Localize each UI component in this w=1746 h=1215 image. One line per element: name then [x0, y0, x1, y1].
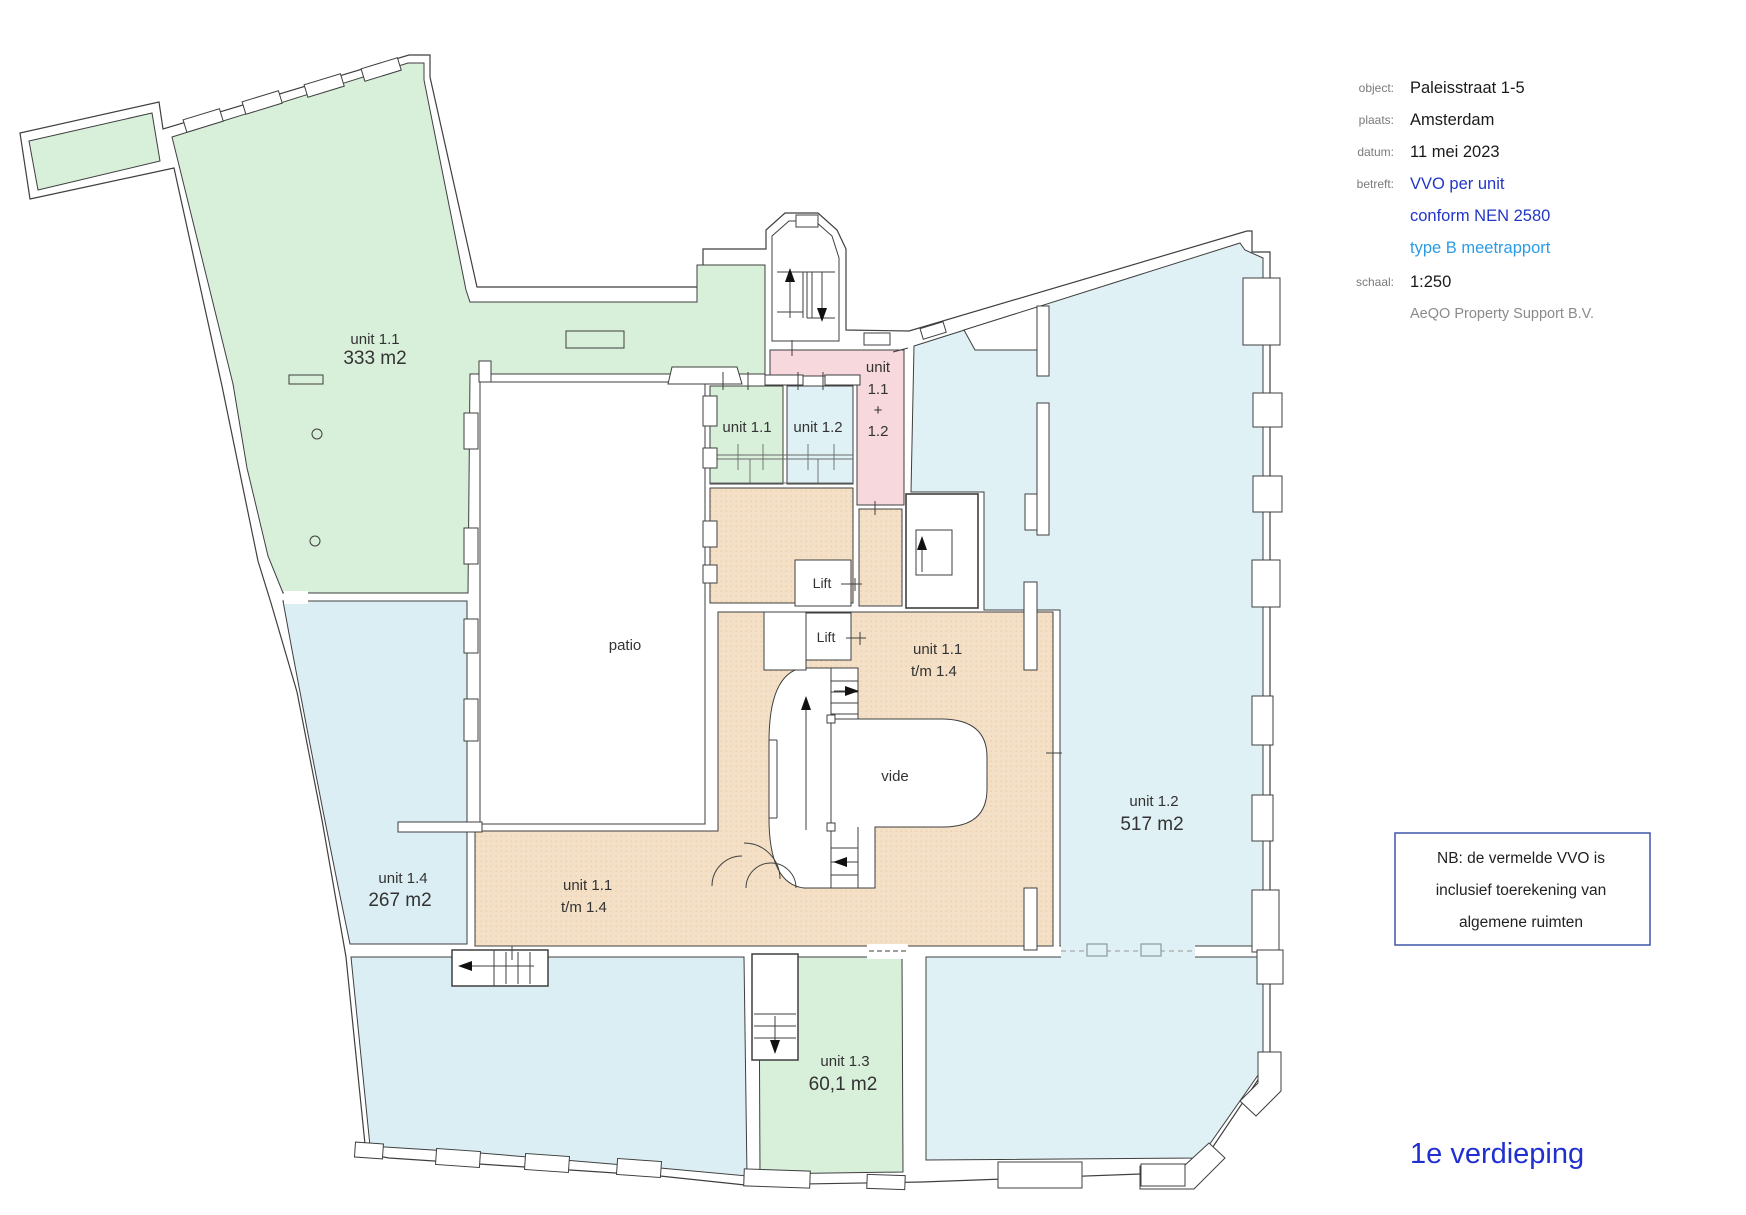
- svg-text:Lift: Lift: [813, 575, 832, 591]
- svg-text:11 mei 2023: 11 mei 2023: [1410, 143, 1500, 161]
- svg-text:VVO per unit: VVO per unit: [1410, 175, 1505, 193]
- svg-text:Paleisstraat 1-5: Paleisstraat 1-5: [1410, 79, 1525, 97]
- svg-text:t/m 1.4: t/m 1.4: [911, 663, 957, 680]
- svg-text:1e verdieping: 1e verdieping: [1410, 1138, 1584, 1170]
- svg-text:NB: de vermelde VVO is: NB: de vermelde VVO is: [1437, 850, 1605, 867]
- svg-text:unit 1.3: unit 1.3: [820, 1053, 869, 1070]
- svg-text:unit 1.2: unit 1.2: [793, 419, 842, 436]
- svg-text:plaats:: plaats:: [1359, 113, 1394, 127]
- svg-text:unit 1.2: unit 1.2: [1129, 793, 1178, 810]
- svg-text:algemene ruimten: algemene ruimten: [1459, 914, 1583, 931]
- svg-text:Amsterdam: Amsterdam: [1410, 111, 1494, 129]
- svg-text:inclusief toerekening van: inclusief toerekening van: [1436, 882, 1607, 899]
- svg-text:517 m2: 517 m2: [1120, 814, 1183, 835]
- svg-text:patio: patio: [609, 637, 642, 654]
- svg-text:betreft:: betreft:: [1357, 177, 1394, 191]
- svg-text:unit 1.1: unit 1.1: [563, 877, 612, 894]
- svg-text:vide: vide: [881, 768, 909, 785]
- svg-text:Lift: Lift: [817, 629, 836, 645]
- svg-text:datum:: datum:: [1357, 145, 1394, 159]
- svg-text:unit 1.1: unit 1.1: [913, 641, 962, 658]
- svg-text:1.2: 1.2: [868, 423, 889, 440]
- svg-text:1:250: 1:250: [1410, 273, 1451, 291]
- svg-text:conform NEN 2580: conform NEN 2580: [1410, 207, 1550, 225]
- svg-text:unit 1.1: unit 1.1: [350, 331, 399, 348]
- svg-text:+: +: [874, 402, 883, 419]
- svg-text:267 m2: 267 m2: [368, 890, 431, 911]
- svg-text:333 m2: 333 m2: [343, 348, 406, 369]
- svg-text:unit 1.4: unit 1.4: [378, 870, 427, 887]
- svg-text:AeQO Property Support B.V.: AeQO Property Support B.V.: [1410, 306, 1594, 322]
- svg-text:t/m 1.4: t/m 1.4: [561, 899, 607, 916]
- svg-text:object:: object:: [1359, 81, 1394, 95]
- svg-text:unit 1.1: unit 1.1: [722, 419, 771, 436]
- svg-text:1.1: 1.1: [868, 381, 889, 398]
- svg-text:60,1 m2: 60,1 m2: [809, 1074, 878, 1095]
- svg-text:schaal:: schaal:: [1356, 275, 1394, 289]
- svg-text:type B meetrapport: type B meetrapport: [1410, 239, 1551, 257]
- svg-text:unit: unit: [866, 359, 891, 376]
